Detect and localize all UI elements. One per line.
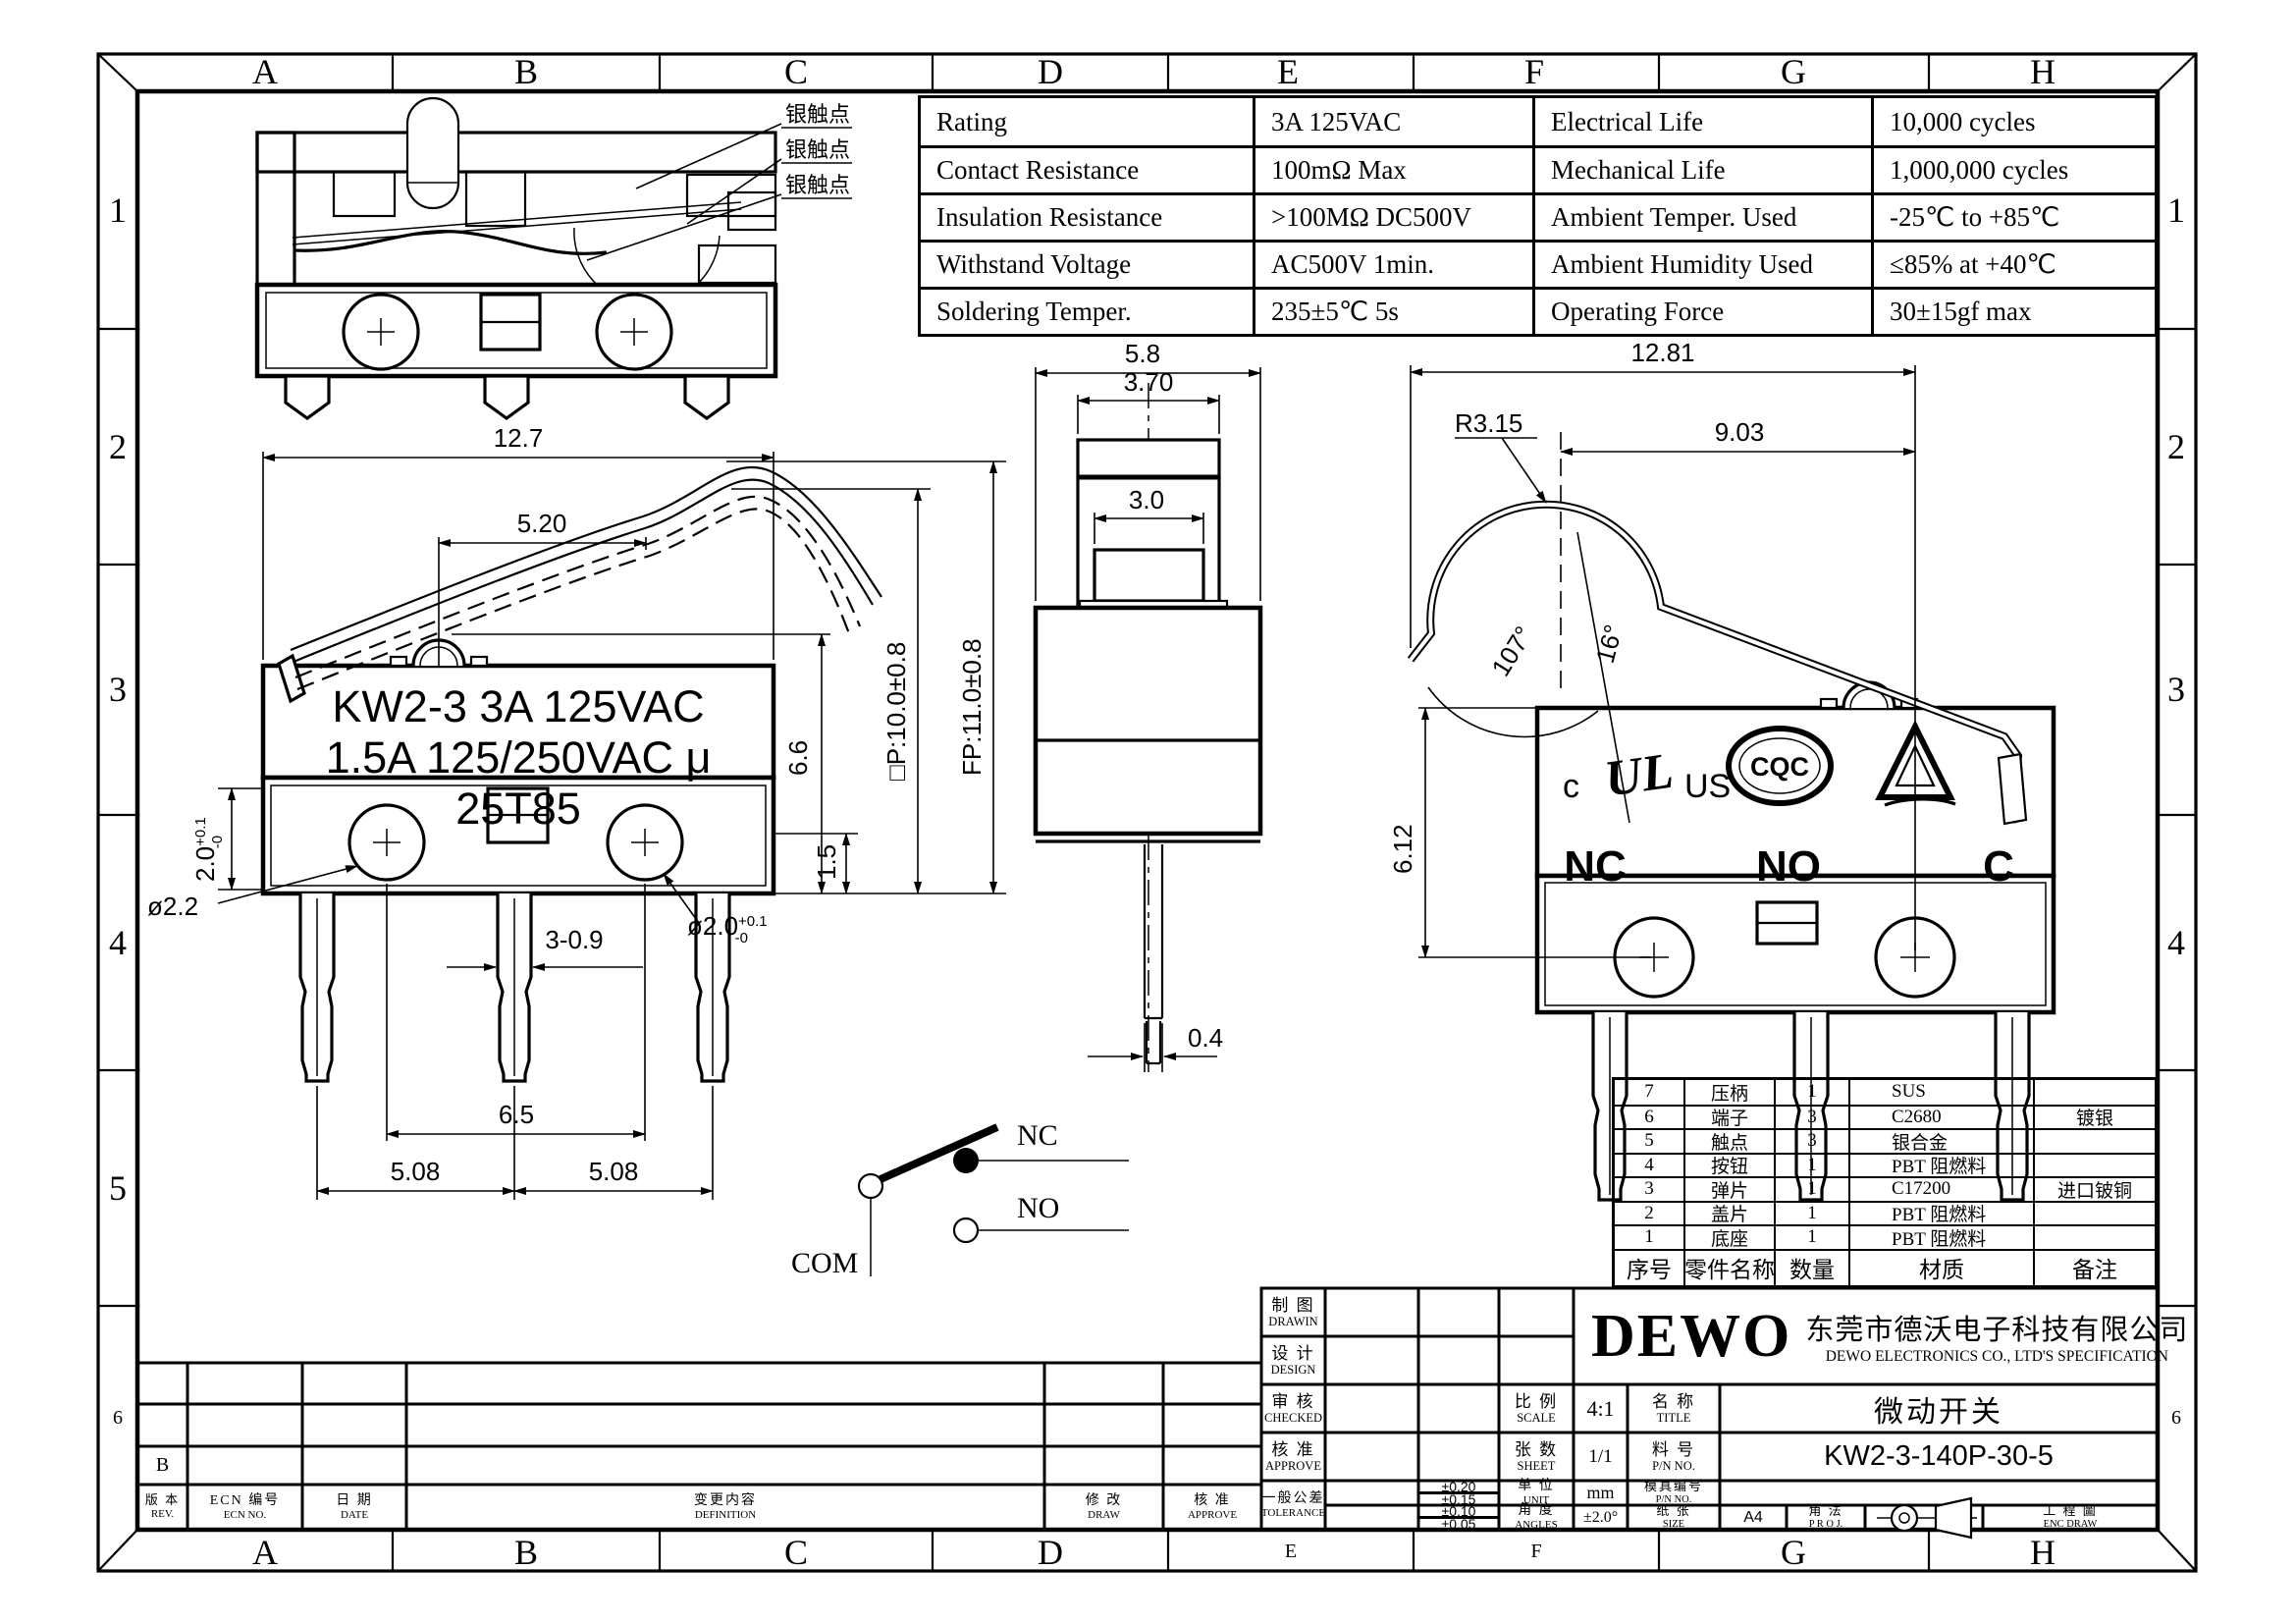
col-label: H <box>2030 52 2056 91</box>
parts-cell: 底座 <box>1683 1224 1774 1249</box>
circuit-diagram: NC NO COM <box>791 1119 1129 1279</box>
angles-value: ±2.0° <box>1574 1505 1628 1530</box>
parts-cell: 5 <box>1615 1128 1683 1153</box>
parts-cell <box>2033 1153 2155 1177</box>
parts-cell: 3 <box>1774 1105 1848 1129</box>
field-eng-draw: 工 程 圖ENC DRAW <box>1983 1505 2158 1530</box>
spec-cell: Rating <box>921 98 1253 145</box>
scale-value: 4:1 <box>1574 1384 1628 1433</box>
spec-table: Rating 3A 125VAC Electrical Life 10,000 … <box>918 95 2158 337</box>
dim-lever-length: 9.03 <box>1715 417 1765 447</box>
parts-cell: 1 <box>1774 1176 1848 1201</box>
revision-letter: B <box>137 1446 187 1485</box>
col-label: D <box>1038 52 1063 91</box>
spec-cell: 1,000,000 cycles <box>1871 145 2155 192</box>
col-label: A <box>252 52 278 91</box>
sheet-value: 1/1 <box>1574 1433 1628 1481</box>
terminal-no-label: NO <box>1756 842 1821 891</box>
col-label: G <box>1781 1533 1806 1572</box>
field-drawin: 制 图DRAWIN <box>1261 1288 1325 1336</box>
row-label: 6 <box>113 1407 123 1429</box>
parts-cell: 2 <box>1615 1201 1683 1225</box>
field-approve: 核 准APPROVE <box>1261 1433 1325 1481</box>
parts-cell: C2680 <box>1848 1105 2033 1129</box>
parts-cell: SUS <box>1848 1080 2033 1105</box>
dim-rivet-diameter: ø2.2 <box>147 892 198 921</box>
approve-header: 核 准APPROVE <box>1163 1485 1261 1530</box>
dim-pitch-left: 5.08 <box>391 1157 441 1186</box>
definition-header: 变更内容DEFINITION <box>406 1485 1044 1530</box>
field-pn: 料 号P/N NO. <box>1628 1433 1720 1481</box>
parts-table: 7 压柄 1 SUS 6 端子 3 C2680 镀银 5 触点 3 银合金 4 … <box>1612 1077 2158 1288</box>
company-name-cn: 东莞市德沃电子科技有限公司 <box>1805 1307 2188 1348</box>
dim-lever: 5.20 <box>517 509 567 538</box>
field-checked: 审 核CHECKED <box>1261 1384 1325 1433</box>
unit-value: mm <box>1574 1481 1628 1505</box>
pn-value: KW2-3-140P-30-5 <box>1720 1433 2158 1481</box>
field-sheet: 张 数SHEET <box>1499 1433 1574 1481</box>
dim-operating-position: □P:10.0±0.8 <box>881 642 911 781</box>
row-label: 2 <box>2167 427 2185 466</box>
company-logo: DEWO <box>1574 1302 1805 1372</box>
dim-pitch-right: 5.08 <box>589 1157 639 1186</box>
field-design: 设 计DESIGN <box>1261 1336 1325 1384</box>
engineering-drawing-sheet: { "border": { "cols": ["A","B","C","D","… <box>0 0 2296 1623</box>
parts-header: 备注 <box>2033 1249 2155 1286</box>
parts-cell <box>2033 1128 2155 1153</box>
dim-side-width: 5.8 <box>1125 339 1160 368</box>
spec-cell: Contact Resistance <box>921 145 1253 192</box>
dim-total-width: 12.81 <box>1630 338 1694 367</box>
spec-cell: 30±15gf max <box>1871 287 2155 334</box>
size-value: A4 <box>1720 1505 1787 1530</box>
parts-cell: PBT 阻燃料 <box>1848 1153 2033 1177</box>
silver-contact-label: 银触点 <box>785 137 850 162</box>
parts-cell: 1 <box>1615 1224 1683 1249</box>
dim-terminal-width: 3-0.9 <box>545 925 603 954</box>
col-label: F <box>1524 52 1544 91</box>
parts-cell: 端子 <box>1683 1105 1774 1129</box>
parts-cell <box>2033 1080 2155 1105</box>
parts-cell: 1 <box>1774 1201 1848 1225</box>
col-label: A <box>252 1533 278 1572</box>
col-label: G <box>1781 52 1806 91</box>
parts-header: 数量 <box>1774 1249 1848 1286</box>
col-label: E <box>1277 52 1299 91</box>
title-value: 微动开关 <box>1720 1384 2158 1433</box>
col-label: D <box>1038 1533 1063 1572</box>
parts-cell: 1 <box>1774 1224 1848 1249</box>
col-label: F <box>1530 1541 1541 1562</box>
spec-cell: Ambient Humidity Used <box>1532 240 1871 287</box>
dim-free-position: FP:11.0±0.8 <box>957 638 987 776</box>
ecn-header: ECN 编号ECN NO. <box>187 1485 302 1530</box>
dim-lever-radius: R3.15 <box>1455 408 1522 438</box>
ul-c-label: c <box>1563 768 1579 805</box>
row-label: 5 <box>109 1168 127 1208</box>
silver-contact-label: 银触点 <box>785 102 850 127</box>
row-label: 4 <box>109 923 127 962</box>
parts-cell: 触点 <box>1683 1128 1774 1153</box>
parts-cell: 压柄 <box>1683 1080 1774 1105</box>
row-label: 1 <box>2167 190 2185 230</box>
col-label: B <box>514 1533 538 1572</box>
parts-cell: 6 <box>1615 1105 1683 1129</box>
dim-base-height: 2.0+0.1-0 <box>190 817 226 882</box>
parts-cell: PBT 阻燃料 <box>1848 1201 2033 1225</box>
row-label: 4 <box>2167 923 2185 962</box>
field-unit: 单 位UNIT <box>1499 1481 1574 1505</box>
parts-cell: 1 <box>1774 1153 1848 1177</box>
parts-cell: C17200 <box>1848 1176 2033 1201</box>
circuit-nc-label: NC <box>1017 1119 1058 1152</box>
parts-cell <box>2033 1201 2155 1225</box>
marking-line1: KW2-3 3A 125VAC <box>332 681 704 731</box>
company-header: DEWO 东莞市德沃电子科技有限公司 DEWO ELECTRONICS CO.,… <box>1574 1288 2158 1384</box>
spec-cell: Electrical Life <box>1532 98 1871 145</box>
field-tolerance: 一般公差TOLERANCE <box>1261 1481 1325 1530</box>
spec-cell: Soldering Temper. <box>921 287 1253 334</box>
right-view: 107° 16° 12.81 9.03 R3.15 6.12 c UL US C… <box>1388 338 2054 1200</box>
parts-header: 零件名称 <box>1683 1249 1774 1286</box>
parts-cell: 3 <box>1615 1176 1683 1201</box>
parts-cell: 4 <box>1615 1153 1683 1177</box>
company-name-en: DEWO ELECTRONICS CO., LTD'S SPECIFICATIO… <box>1826 1348 2168 1366</box>
dim-body-height: 6.6 <box>783 740 813 776</box>
spec-cell: Operating Force <box>1532 287 1871 334</box>
spec-cell: Ambient Temper. Used <box>1532 192 1871 240</box>
draw-header: 修 改DRAW <box>1044 1485 1163 1530</box>
dim-rivet-span: 6.5 <box>499 1100 534 1129</box>
field-scale: 比 例SCALE <box>1499 1384 1574 1433</box>
spec-cell: Withstand Voltage <box>921 240 1253 287</box>
dim-plunger-width: 3.0 <box>1129 485 1164 514</box>
spec-cell: 235±5℃ 5s <box>1253 287 1532 334</box>
parts-cell <box>2033 1224 2155 1249</box>
col-label: B <box>514 52 538 91</box>
spec-cell: >100MΩ DC500V <box>1253 192 1532 240</box>
parts-cell: 按钮 <box>1683 1153 1774 1177</box>
dim-button-width: 3.70 <box>1124 367 1174 397</box>
dim-angle-free: 16° <box>1590 622 1629 667</box>
rev-header: 版 本REV. <box>137 1485 187 1530</box>
parts-header: 材质 <box>1848 1249 2033 1286</box>
dim-base-step: 1.5 <box>812 844 841 880</box>
circuit-no-label: NO <box>1017 1192 1059 1224</box>
terminal-c-label: C <box>1983 842 2014 891</box>
parts-cell: 盖片 <box>1683 1201 1774 1225</box>
marking-line3: 25T85 <box>455 784 581 834</box>
dim-terminal-thickness: 0.4 <box>1188 1023 1223 1053</box>
tolerance-value: ±0.05 <box>1418 1518 1499 1531</box>
parts-cell: 3 <box>1774 1128 1848 1153</box>
ul-logo: UL <box>1601 743 1677 808</box>
parts-cell: PBT 阻燃料 <box>1848 1224 2033 1249</box>
field-size: 纸 张SIZE <box>1628 1505 1720 1530</box>
spec-cell: 10,000 cycles <box>1871 98 2155 145</box>
row-label: 2 <box>109 427 127 466</box>
field-proj: 角 法P R O J. <box>1787 1505 1865 1530</box>
row-label: 3 <box>2167 670 2185 709</box>
spec-cell: 100mΩ Max <box>1253 145 1532 192</box>
row-label: 1 <box>109 190 127 230</box>
marking-line2: 1.5A 125/250VAC μ <box>326 732 712 783</box>
parts-cell: 弹片 <box>1683 1176 1774 1201</box>
parts-cell: 7 <box>1615 1080 1683 1105</box>
row-label: 3 <box>109 670 127 709</box>
spec-cell: Insulation Resistance <box>921 192 1253 240</box>
ul-us-label: US <box>1684 768 1731 805</box>
field-mold: 模具编号P/N NO. <box>1628 1481 1720 1505</box>
spec-cell: ≤85% at +40℃ <box>1871 240 2155 287</box>
col-label: C <box>784 1533 808 1572</box>
field-angles: 角 度ANGLES <box>1499 1505 1574 1530</box>
dim-width: 12.7 <box>494 423 544 453</box>
row-label: 6 <box>2171 1407 2181 1429</box>
spec-cell: Mechanical Life <box>1532 145 1871 192</box>
col-label: C <box>784 52 808 91</box>
parts-cell: 1 <box>1774 1080 1848 1105</box>
terminal-nc-label: NC <box>1564 842 1627 891</box>
col-label: E <box>1285 1541 1297 1562</box>
section-view: 银触点 银触点 银触点 <box>257 98 852 418</box>
cqc-logo: CQC <box>1750 752 1809 782</box>
parts-cell: 镀银 <box>2033 1105 2155 1129</box>
dim-height: 6.12 <box>1388 824 1417 874</box>
spec-cell: 3A 125VAC <box>1253 98 1532 145</box>
front-view: KW2-3 3A 125VAC 1.5A 125/250VAC μ 25T85 … <box>147 423 1006 1200</box>
parts-header: 序号 <box>1615 1249 1683 1286</box>
side-view: 5.8 3.70 3.0 0.4 <box>1036 339 1260 1072</box>
date-header: 日 期DATE <box>302 1485 406 1530</box>
dim-angle-lever: 107° <box>1485 621 1538 681</box>
spec-cell: AC500V 1min. <box>1253 240 1532 287</box>
silver-contact-label: 银触点 <box>785 173 850 197</box>
spec-cell: -25℃ to +85℃ <box>1871 192 2155 240</box>
parts-cell: 进口铍铜 <box>2033 1176 2155 1201</box>
parts-cell: 银合金 <box>1848 1128 2033 1153</box>
circuit-com-label: COM <box>791 1247 858 1279</box>
col-label: H <box>2030 1533 2056 1572</box>
field-title: 名 称TITLE <box>1628 1384 1720 1433</box>
